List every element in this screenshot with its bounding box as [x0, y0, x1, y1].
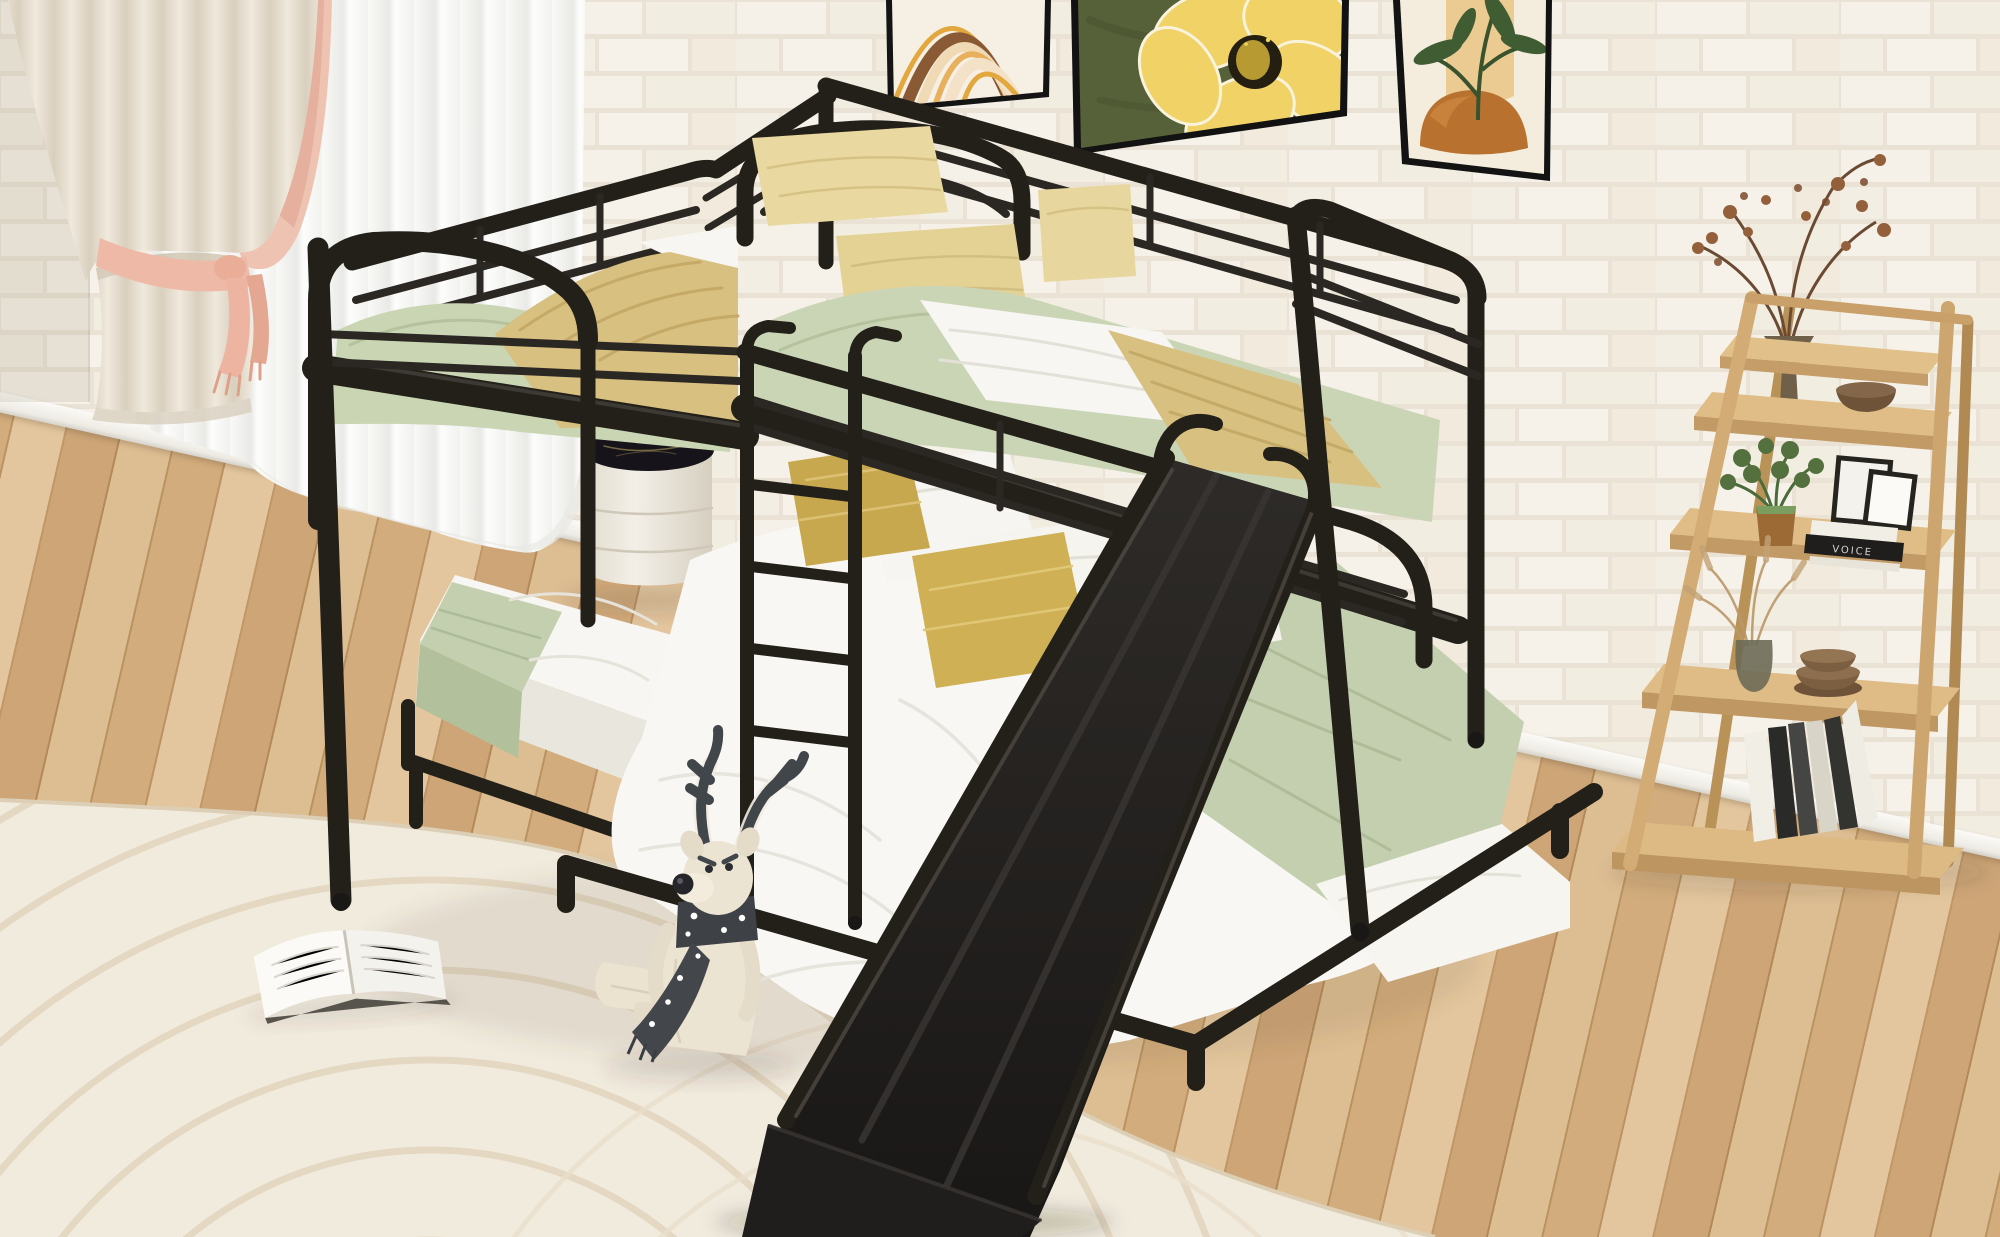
photo-frames [1833, 458, 1915, 529]
scene: VOICE [0, 0, 2000, 1237]
ladder-shelf: VOICE [1610, 154, 1990, 895]
book-stack: VOICE [1804, 520, 1904, 572]
bowl-stack [1794, 649, 1862, 697]
tan-pillow-3 [1038, 184, 1136, 282]
